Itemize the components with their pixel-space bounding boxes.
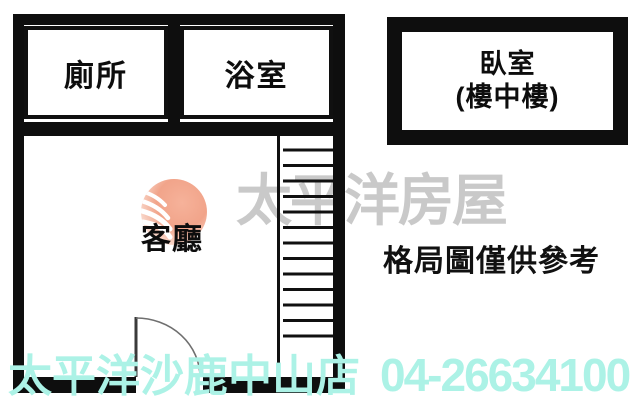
room-bathroom: 浴室 [180, 26, 333, 119]
room-bedroom-box: 臥室 (樓中樓) [387, 17, 628, 145]
bedroom-label-line2: (樓中樓) [456, 81, 560, 114]
footer-phone-number: 04-26634100 [380, 350, 629, 400]
wall-divider [168, 25, 180, 122]
brand-watermark: 太平洋房屋 [236, 172, 506, 230]
toilet-label: 廁所 [64, 51, 128, 95]
bedroom-label-line1: 臥室 [480, 48, 536, 81]
footer-contact: 太平洋沙鹿中山店 04-26634100 [8, 350, 629, 402]
wall-horizontal [24, 122, 333, 136]
living-room-label: 客廳 [141, 214, 203, 258]
stairs-steps-icon [283, 136, 333, 348]
bathroom-label: 浴室 [225, 51, 289, 95]
disclaimer-text: 格局圖僅供參考 [383, 236, 600, 280]
floor-plan-page: 廁所 浴室 臥室 (樓中樓) [0, 0, 640, 414]
room-toilet: 廁所 [24, 26, 168, 119]
footer-store-name: 太平洋沙鹿中山店 [8, 352, 360, 402]
